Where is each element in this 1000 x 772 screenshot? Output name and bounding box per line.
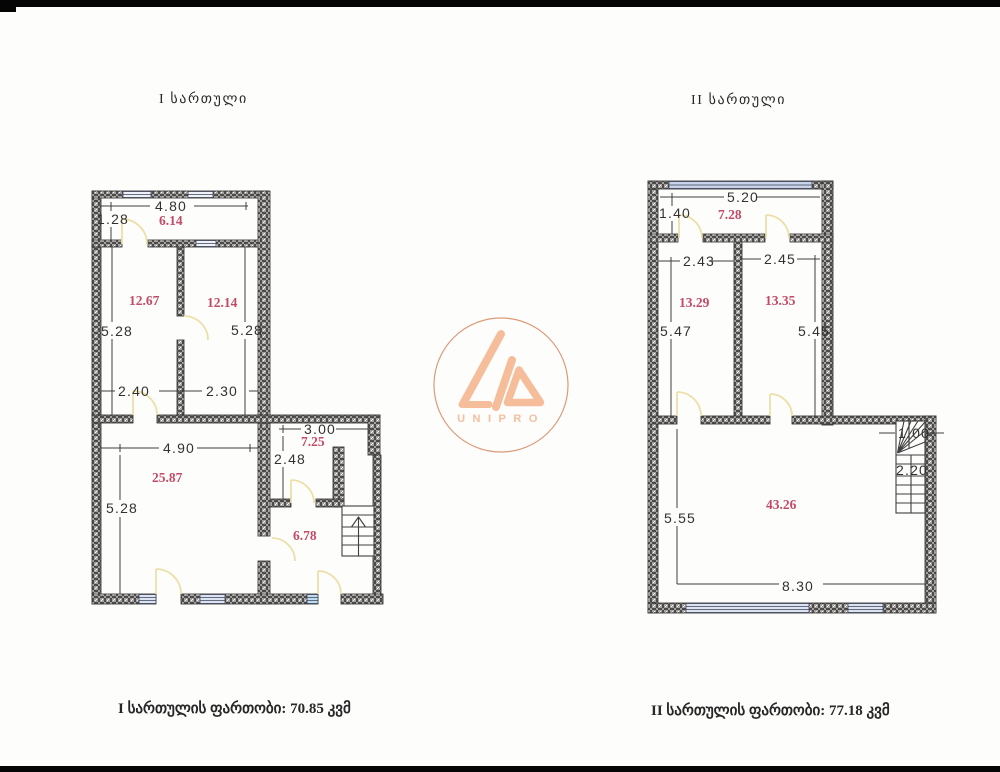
svg-text:1.00: 1.00 [898,425,930,441]
svg-text:1.40: 1.40 [659,205,691,221]
svg-text:12.67: 12.67 [129,293,160,308]
svg-text:5.28: 5.28 [106,500,138,516]
svg-text:5.55: 5.55 [664,510,696,526]
svg-text:2.48: 2.48 [274,451,306,467]
svg-text:4.90: 4.90 [163,440,195,456]
svg-text:I სართულის ფართობი: 70.85 კვმ: I სართულის ფართობი: 70.85 კვმ [118,700,351,717]
svg-text:2.30: 2.30 [206,383,238,399]
svg-text:II სართული: II სართული [691,92,786,108]
svg-text:2.40: 2.40 [118,383,150,399]
svg-text:I სართული: I სართული [159,91,248,107]
svg-text:6.14: 6.14 [159,213,183,228]
svg-text:1.28: 1.28 [97,211,129,227]
svg-text:6.78: 6.78 [293,528,317,543]
svg-text:5.28: 5.28 [101,323,133,339]
svg-text:8.30: 8.30 [782,578,814,594]
svg-text:5.28: 5.28 [231,322,263,338]
svg-text:UNIPRO: UNIPRO [457,413,545,425]
svg-text:13.35: 13.35 [765,293,796,308]
svg-text:4.80: 4.80 [155,198,187,214]
svg-text:12.14: 12.14 [207,295,238,310]
svg-text:43.26: 43.26 [766,497,797,512]
svg-text:5.47: 5.47 [660,323,692,339]
svg-text:7.28: 7.28 [718,207,742,222]
svg-text:7.25: 7.25 [301,434,325,449]
svg-text:2.43: 2.43 [683,253,715,269]
svg-text:5.45: 5.45 [798,323,830,339]
svg-text:13.29: 13.29 [679,295,710,310]
svg-text:II სართულის ფართობი: 77.18 კვმ: II სართულის ფართობი: 77.18 კვმ [651,702,890,719]
svg-text:25.87: 25.87 [152,470,183,485]
svg-text:5.20: 5.20 [727,189,759,205]
svg-text:2.45: 2.45 [764,251,796,267]
svg-text:2.20: 2.20 [896,462,928,478]
